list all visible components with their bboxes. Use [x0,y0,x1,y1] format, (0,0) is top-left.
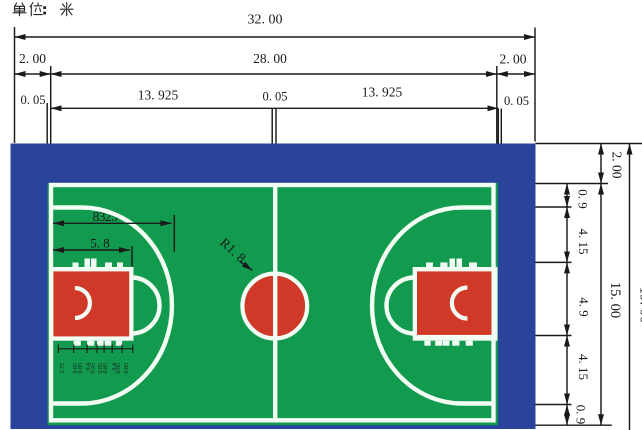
svg-text:2. 00: 2. 00 [19,51,46,66]
svg-text:0.85: 0.85 [78,363,84,374]
svg-text:4. 15: 4. 15 [576,229,591,255]
svg-text:4. 9: 4. 9 [577,297,592,317]
svg-text:28. 00: 28. 00 [253,51,287,66]
svg-text:0. 05: 0. 05 [21,93,46,107]
svg-text:19. 00: 19. 00 [637,287,642,323]
svg-text:13. 925: 13. 925 [138,88,179,103]
svg-text:2. 00: 2. 00 [500,52,527,67]
svg-text:2. 00: 2. 00 [610,152,625,179]
svg-text:13. 925: 13. 925 [362,85,403,100]
svg-text:0. 9: 0. 9 [574,405,589,425]
svg-text:32. 00: 32. 00 [248,13,283,28]
svg-text:1.75: 1.75 [60,363,66,374]
svg-text:15. 00: 15. 00 [607,282,623,318]
svg-text:0. 05: 0. 05 [504,94,529,108]
svg-text:0. 05: 0. 05 [263,90,288,104]
svg-text:0. 9: 0. 9 [576,189,591,209]
svg-text:5. 8: 5. 8 [90,236,110,251]
svg-text:4. 15: 4. 15 [576,354,591,380]
svg-text:0.85: 0.85 [116,363,122,374]
svg-text:0.85: 0.85 [103,363,109,374]
svg-text:0.45: 0.45 [91,363,97,374]
svg-text:0.85: 0.85 [124,363,130,374]
